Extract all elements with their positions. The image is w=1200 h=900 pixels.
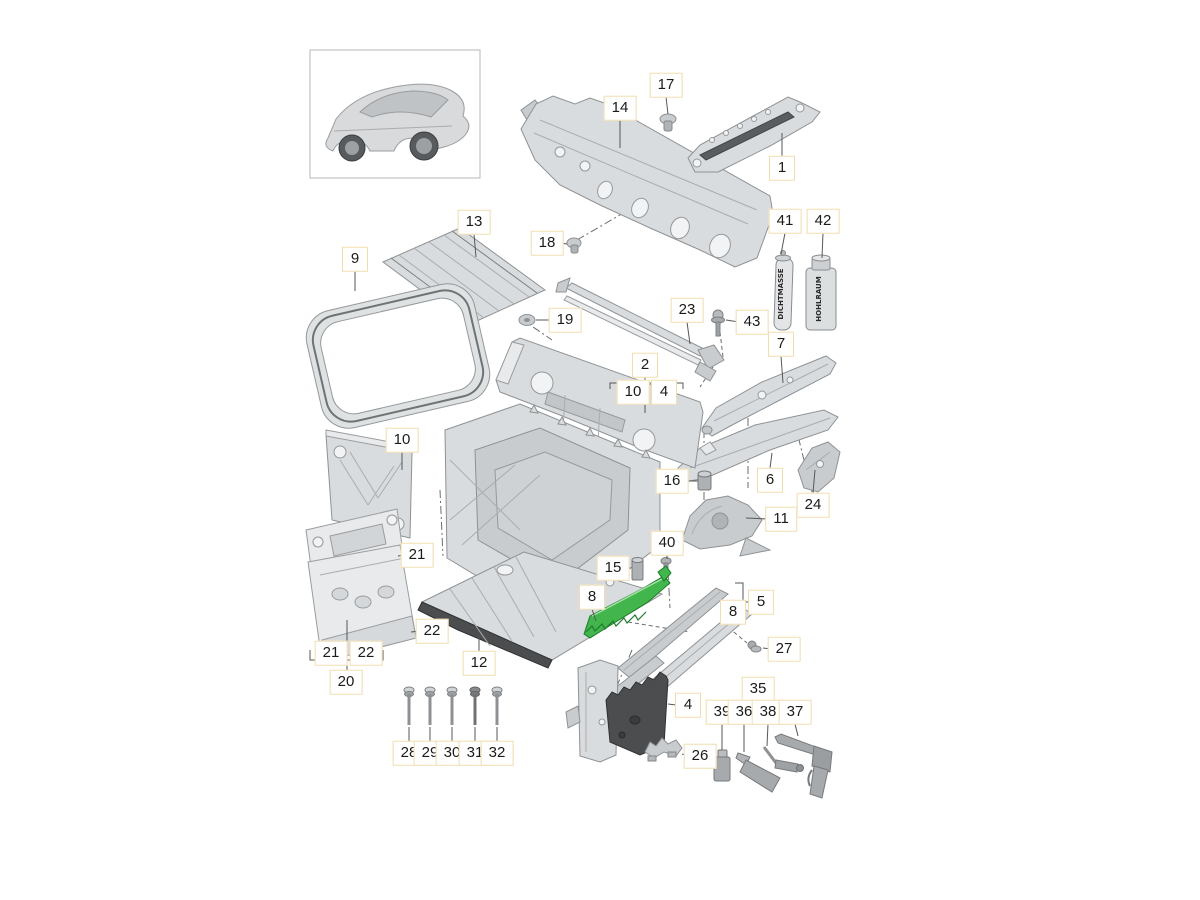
- part-15-bushing[interactable]: [632, 558, 643, 581]
- parts-diagram-canvas: DICHTMASSE HOHLRAUM: [0, 0, 1200, 900]
- callout-8-group[interactable]: 8: [720, 600, 746, 625]
- callout-5[interactable]: 5: [748, 590, 774, 615]
- diagram-artwork: DICHTMASSE HOHLRAUM: [0, 0, 1200, 900]
- part-19-grommet[interactable]: [519, 315, 535, 326]
- callout-20[interactable]: 20: [330, 670, 363, 695]
- part-24-bracket[interactable]: [798, 442, 840, 492]
- part-31-rivet[interactable]: [470, 687, 480, 725]
- part-18-grommet[interactable]: [567, 238, 581, 253]
- part-16-spacer-sleeve[interactable]: [698, 471, 711, 490]
- callout-1[interactable]: 1: [769, 156, 795, 181]
- callout-4-group[interactable]: 4: [651, 380, 677, 405]
- callout-7[interactable]: 7: [768, 332, 794, 357]
- callout-14[interactable]: 14: [604, 96, 637, 121]
- callout-22[interactable]: 22: [416, 619, 449, 644]
- callout-43[interactable]: 43: [736, 310, 769, 335]
- callout-27[interactable]: 27: [768, 637, 801, 662]
- callout-10[interactable]: 10: [386, 428, 419, 453]
- callout-12[interactable]: 12: [463, 651, 496, 676]
- callout-11[interactable]: 11: [765, 507, 797, 532]
- callout-26[interactable]: 26: [684, 744, 717, 769]
- callout-10-group[interactable]: 10: [617, 380, 650, 405]
- callout-37[interactable]: 37: [779, 700, 812, 725]
- vehicle-thumbnail: [310, 50, 480, 178]
- callout-21[interactable]: 21: [401, 543, 434, 568]
- callout-24[interactable]: 24: [797, 493, 830, 518]
- callout-4[interactable]: 4: [675, 693, 701, 718]
- part-1-cowl-panel[interactable]: [688, 97, 820, 172]
- callout-32[interactable]: 32: [481, 741, 514, 766]
- callout-17[interactable]: 17: [650, 73, 683, 98]
- callout-40[interactable]: 40: [651, 531, 684, 556]
- part-43-bolt[interactable]: [712, 310, 725, 336]
- part-30-rivet[interactable]: [447, 687, 457, 725]
- part-38-applicator-wand[interactable]: [764, 747, 804, 772]
- part-9-seal-frame[interactable]: [301, 278, 496, 434]
- part-17-grommet[interactable]: [660, 114, 676, 131]
- part-11-wheel-housing[interactable]: [682, 496, 770, 556]
- callout-22-group[interactable]: 22: [350, 641, 383, 666]
- callout-16[interactable]: 16: [656, 469, 689, 494]
- callout-23[interactable]: 23: [671, 298, 704, 323]
- callout-19[interactable]: 19: [549, 308, 582, 333]
- callout-9[interactable]: 9: [342, 247, 368, 272]
- callout-35[interactable]: 35: [742, 677, 775, 702]
- part-27-bolt[interactable]: [748, 641, 761, 652]
- part-32-rivet[interactable]: [492, 687, 502, 725]
- callout-6[interactable]: 6: [757, 468, 783, 493]
- cavity-can-label: HOHLRAUM: [815, 276, 823, 321]
- callout-21-group[interactable]: 21: [315, 641, 348, 666]
- callout-18[interactable]: 18: [531, 231, 564, 256]
- callout-13[interactable]: 13: [458, 210, 491, 235]
- callout-8[interactable]: 8: [579, 585, 605, 610]
- part-29-rivet[interactable]: [425, 687, 435, 725]
- callout-41[interactable]: 41: [769, 209, 802, 234]
- callout-42[interactable]: 42: [807, 209, 840, 234]
- part-42-cavity-spray-can[interactable]: HOHLRAUM: [806, 255, 836, 330]
- callout-15[interactable]: 15: [597, 556, 630, 581]
- sealant-can-label: DICHTMASSE: [777, 268, 785, 319]
- part-41-sealant-tube[interactable]: DICHTMASSE: [774, 251, 794, 331]
- part-39-nozzle-bottle[interactable]: [714, 750, 730, 781]
- callout-2[interactable]: 2: [632, 353, 658, 378]
- part-28-rivet[interactable]: [404, 687, 414, 725]
